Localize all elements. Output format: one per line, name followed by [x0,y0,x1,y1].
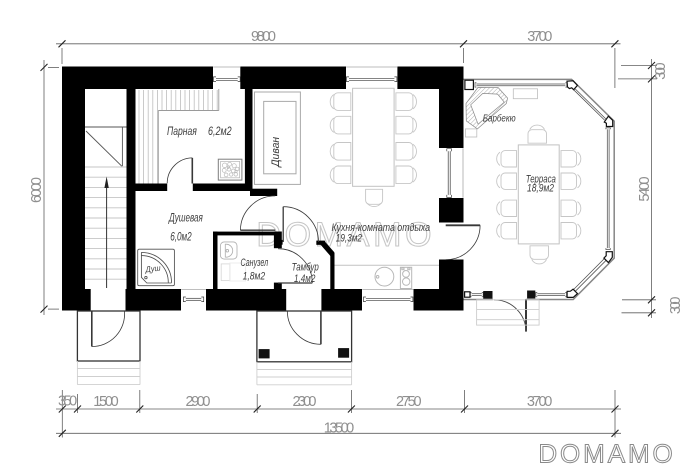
svg-text:3700: 3700 [527,29,552,45]
svg-text:2900: 2900 [186,394,211,410]
svg-text:300: 300 [668,297,684,315]
svg-text:9800: 9800 [251,29,276,45]
svg-text:19,3м2: 19,3м2 [336,232,362,244]
svg-text:3700: 3700 [527,394,553,410]
svg-text:2750: 2750 [396,394,422,410]
svg-text:Парная: Парная [167,126,197,138]
svg-text:Барбекю: Барбекю [483,114,516,125]
svg-text:Тамбур: Тамбур [292,261,319,273]
svg-text:DOMAMO: DOMAMO [538,438,675,468]
svg-text:5400: 5400 [637,176,653,201]
svg-text:Диван: Диван [270,137,282,169]
svg-text:Санузел: Санузел [241,257,269,269]
svg-text:6,0м2: 6,0м2 [170,232,192,244]
svg-text:2300: 2300 [293,394,317,410]
svg-text:300: 300 [653,62,669,79]
svg-text:Душевая: Душевая [168,213,203,225]
svg-text:1500: 1500 [93,394,119,410]
svg-text:1,8м2: 1,8м2 [243,270,266,282]
svg-text:13500: 13500 [324,421,355,437]
svg-text:1,4м2: 1,4м2 [294,273,315,285]
svg-text:6,2м2: 6,2м2 [208,126,232,138]
svg-text:350: 350 [58,393,77,409]
svg-text:18,9м2: 18,9м2 [527,183,554,195]
svg-text:6000: 6000 [29,177,45,203]
